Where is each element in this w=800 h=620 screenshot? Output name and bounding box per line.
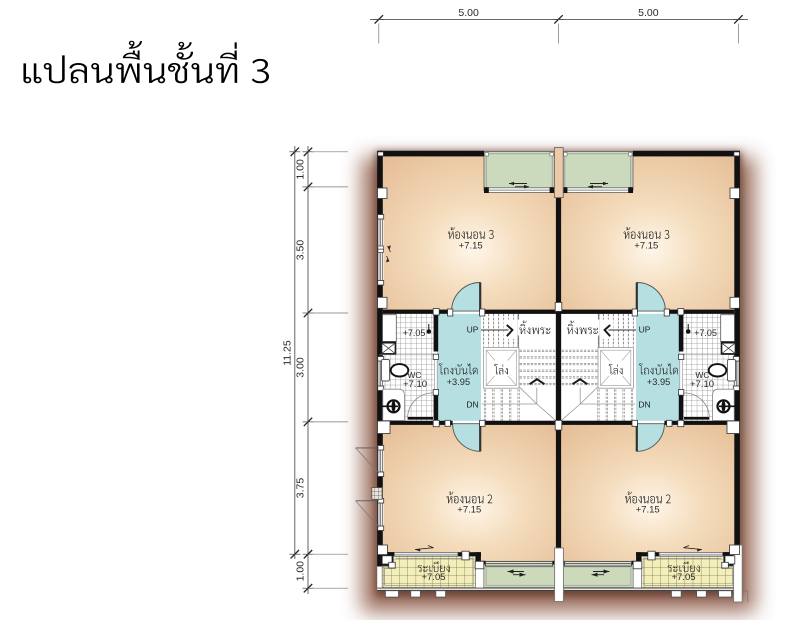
svg-text:UP: UP [467,325,479,335]
svg-text:+7.15: +7.15 [634,240,658,251]
svg-text:+7.05: +7.05 [421,572,445,583]
svg-text:+7.05: +7.05 [403,328,426,338]
svg-text:+7.15: +7.15 [459,240,483,251]
svg-text:1.00: 1.00 [295,159,307,180]
svg-text:5.00: 5.00 [458,7,479,19]
svg-text:+7.10: +7.10 [403,379,427,390]
svg-text:DN: DN [638,399,650,409]
svg-text:11.25: 11.25 [281,340,293,366]
svg-text:+3.95: +3.95 [447,377,471,387]
svg-text:3.00: 3.00 [295,357,307,378]
svg-text:+7.05: +7.05 [694,328,717,338]
svg-text:3.75: 3.75 [295,478,307,499]
svg-text:3.50: 3.50 [295,240,307,261]
svg-text:+7.15: +7.15 [457,505,481,516]
svg-text:+7.05: +7.05 [671,572,695,583]
svg-text:+7.10: +7.10 [690,379,714,390]
svg-text:UP: UP [639,325,651,335]
svg-text:DN: DN [466,399,478,409]
svg-text:5.00: 5.00 [638,7,659,19]
svg-text:1.00: 1.00 [295,561,307,582]
svg-text:+3.95: +3.95 [647,377,671,387]
svg-text:+7.15: +7.15 [636,505,660,516]
